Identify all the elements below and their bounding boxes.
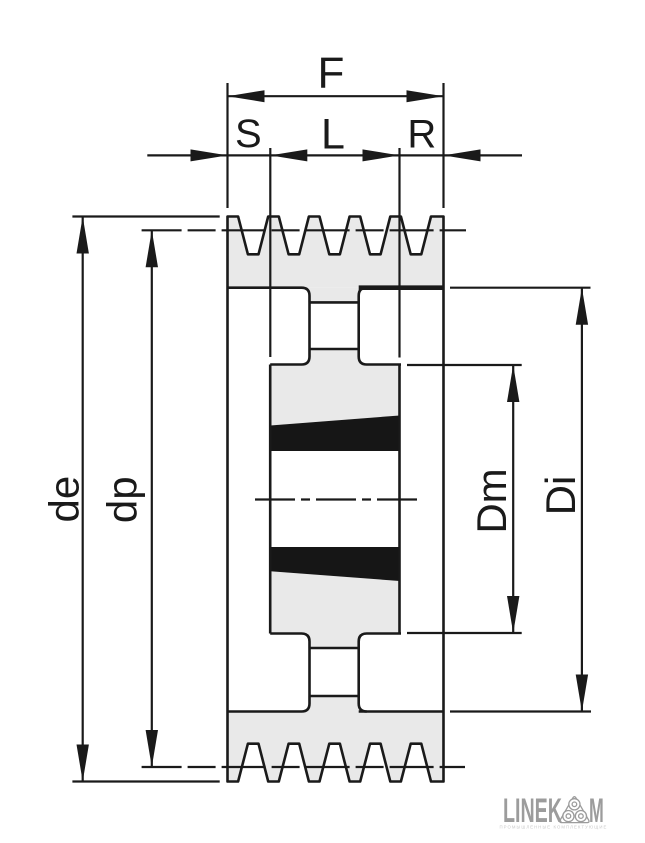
svg-text:S: S — [235, 112, 262, 156]
svg-text:ПРОМЫШЛЕННЫЕ КОМПЛЕКТУЮЩИЕ: ПРОМЫШЛЕННЫЕ КОМПЛЕКТУЮЩИЕ — [500, 825, 608, 830]
svg-text:dp: dp — [99, 476, 146, 523]
svg-text:Di: Di — [537, 476, 584, 516]
svg-text:de: de — [41, 476, 88, 523]
svg-text:L: L — [321, 111, 345, 159]
svg-text:F: F — [318, 49, 345, 98]
svg-text:R: R — [407, 113, 436, 157]
svg-text:Dm: Dm — [468, 468, 515, 533]
